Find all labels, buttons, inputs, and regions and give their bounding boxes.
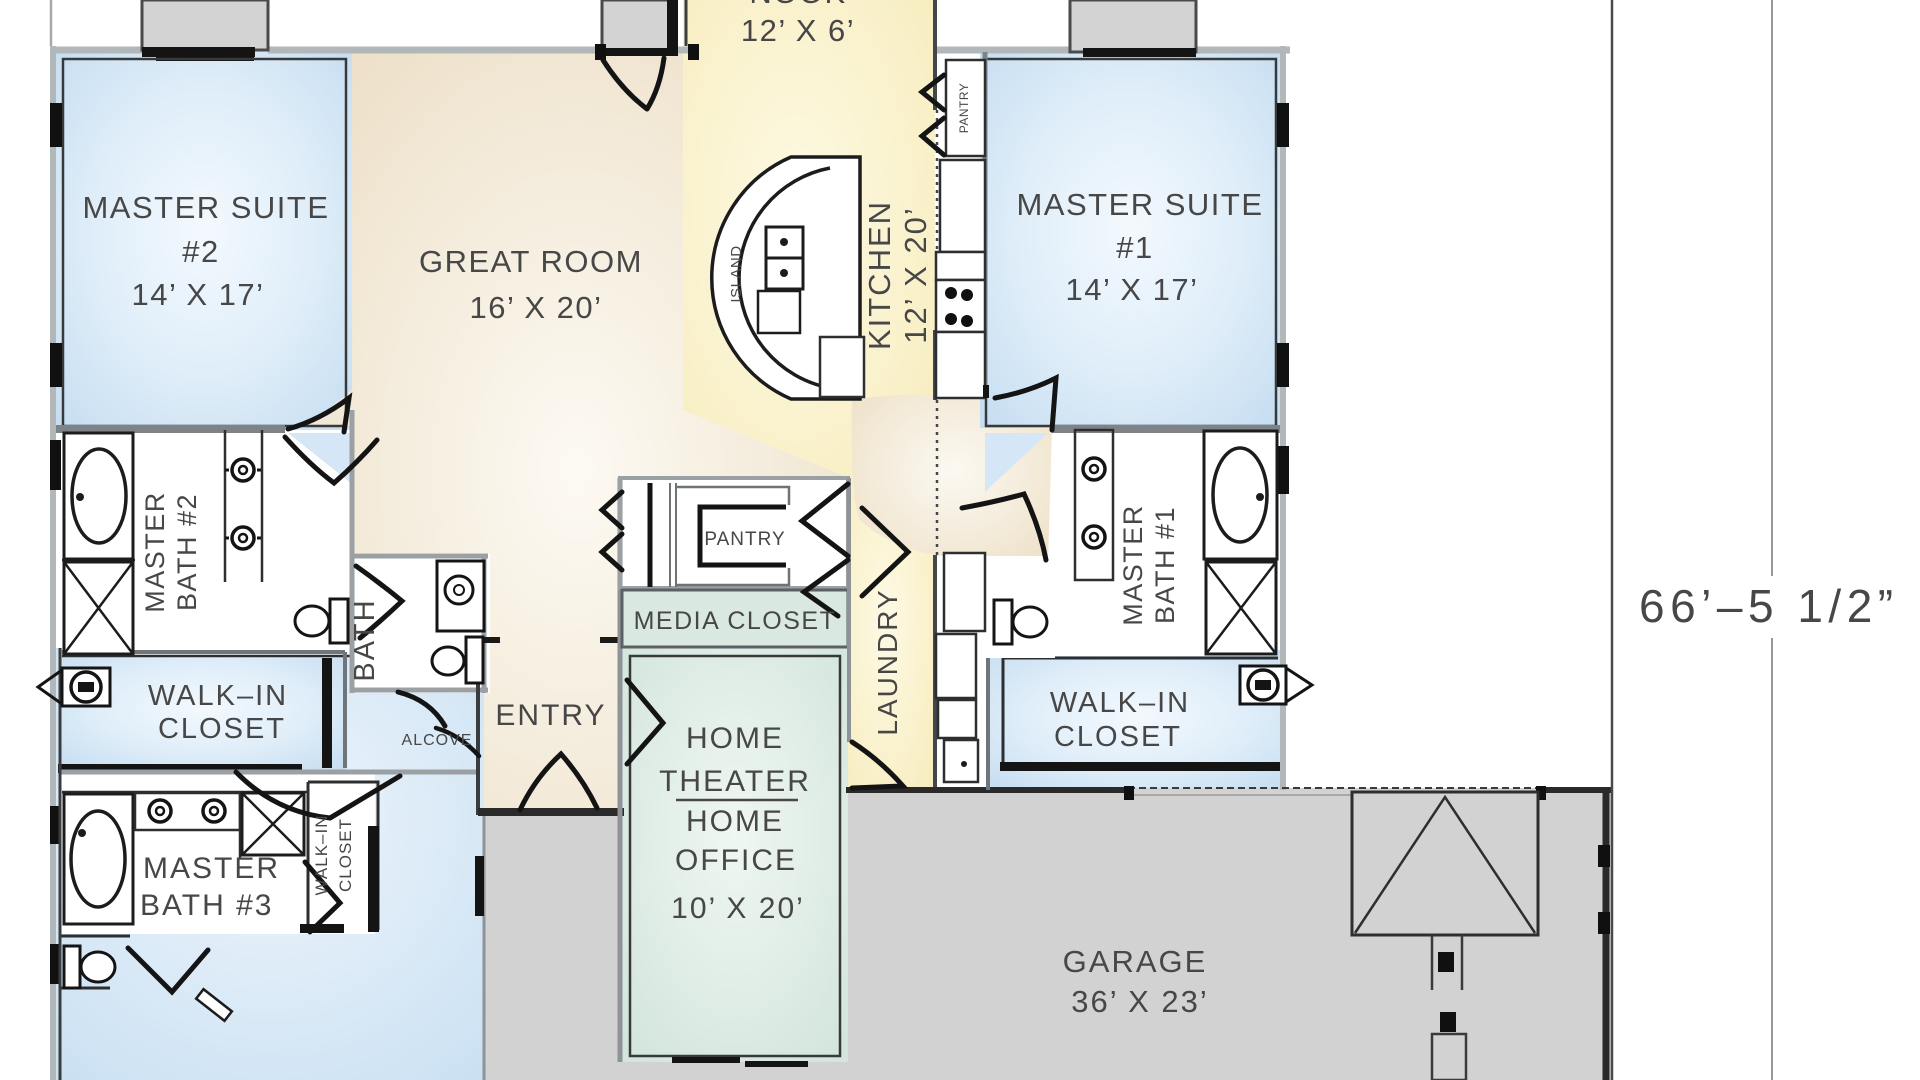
svg-text:10’ X 20’: 10’ X 20’ [671, 892, 805, 925]
svg-text:MASTER: MASTER [140, 491, 170, 613]
svg-text:MASTER: MASTER [143, 852, 280, 885]
svg-text:CLOSET: CLOSET [1054, 721, 1182, 753]
svg-text:36’ X 23’: 36’ X 23’ [1071, 984, 1209, 1019]
svg-text:WALK–IN: WALK–IN [312, 814, 331, 895]
svg-text:PANTRY: PANTRY [704, 529, 785, 550]
svg-text:MASTER SUITE: MASTER SUITE [82, 190, 329, 225]
svg-text:16’ X 20’: 16’ X 20’ [470, 290, 603, 325]
svg-text:GARAGE: GARAGE [1063, 944, 1208, 979]
svg-text:#2: #2 [182, 234, 219, 269]
svg-text:HOME: HOME [686, 805, 784, 838]
svg-text:WALK–IN: WALK–IN [148, 680, 288, 712]
svg-text:#1: #1 [1116, 230, 1153, 265]
svg-text:THEATER: THEATER [659, 765, 811, 798]
svg-text:BATH #1: BATH #1 [1150, 506, 1180, 624]
svg-text:14’ X 17’: 14’ X 17’ [1066, 272, 1199, 307]
svg-text:MEDIA CLOSET: MEDIA CLOSET [634, 607, 837, 635]
svg-text:ENTRY: ENTRY [495, 699, 606, 732]
svg-text:MASTER: MASTER [1118, 504, 1148, 626]
svg-text:ISLAND: ISLAND [728, 245, 745, 302]
svg-text:12’ X 6’: 12’ X 6’ [741, 13, 855, 48]
svg-text:BATH #2: BATH #2 [172, 493, 202, 611]
svg-text:ALCOVE: ALCOVE [402, 732, 473, 749]
svg-text:LAUNDRY: LAUNDRY [872, 588, 903, 735]
svg-text:66’–5 1/2”: 66’–5 1/2” [1639, 580, 1899, 632]
svg-text:GREAT ROOM: GREAT ROOM [419, 244, 643, 279]
svg-text:OFFICE: OFFICE [675, 844, 797, 877]
svg-text:MASTER SUITE: MASTER SUITE [1016, 187, 1263, 222]
svg-text:CLOSET: CLOSET [158, 713, 286, 745]
svg-text:BATH #3: BATH #3 [140, 889, 274, 922]
svg-text:WALK–IN: WALK–IN [1050, 687, 1190, 719]
svg-text:14’ X 17’: 14’ X 17’ [132, 277, 265, 312]
svg-text:KITCHEN: KITCHEN [862, 200, 897, 350]
svg-text:NOOK: NOOK [749, 0, 846, 10]
svg-text:12’ X 20’: 12’ X 20’ [898, 206, 933, 344]
svg-text:BATH: BATH [349, 598, 381, 681]
svg-text:HOME: HOME [686, 722, 784, 755]
svg-text:CLOSET: CLOSET [336, 818, 355, 892]
svg-text:PANTRY: PANTRY [957, 83, 971, 134]
